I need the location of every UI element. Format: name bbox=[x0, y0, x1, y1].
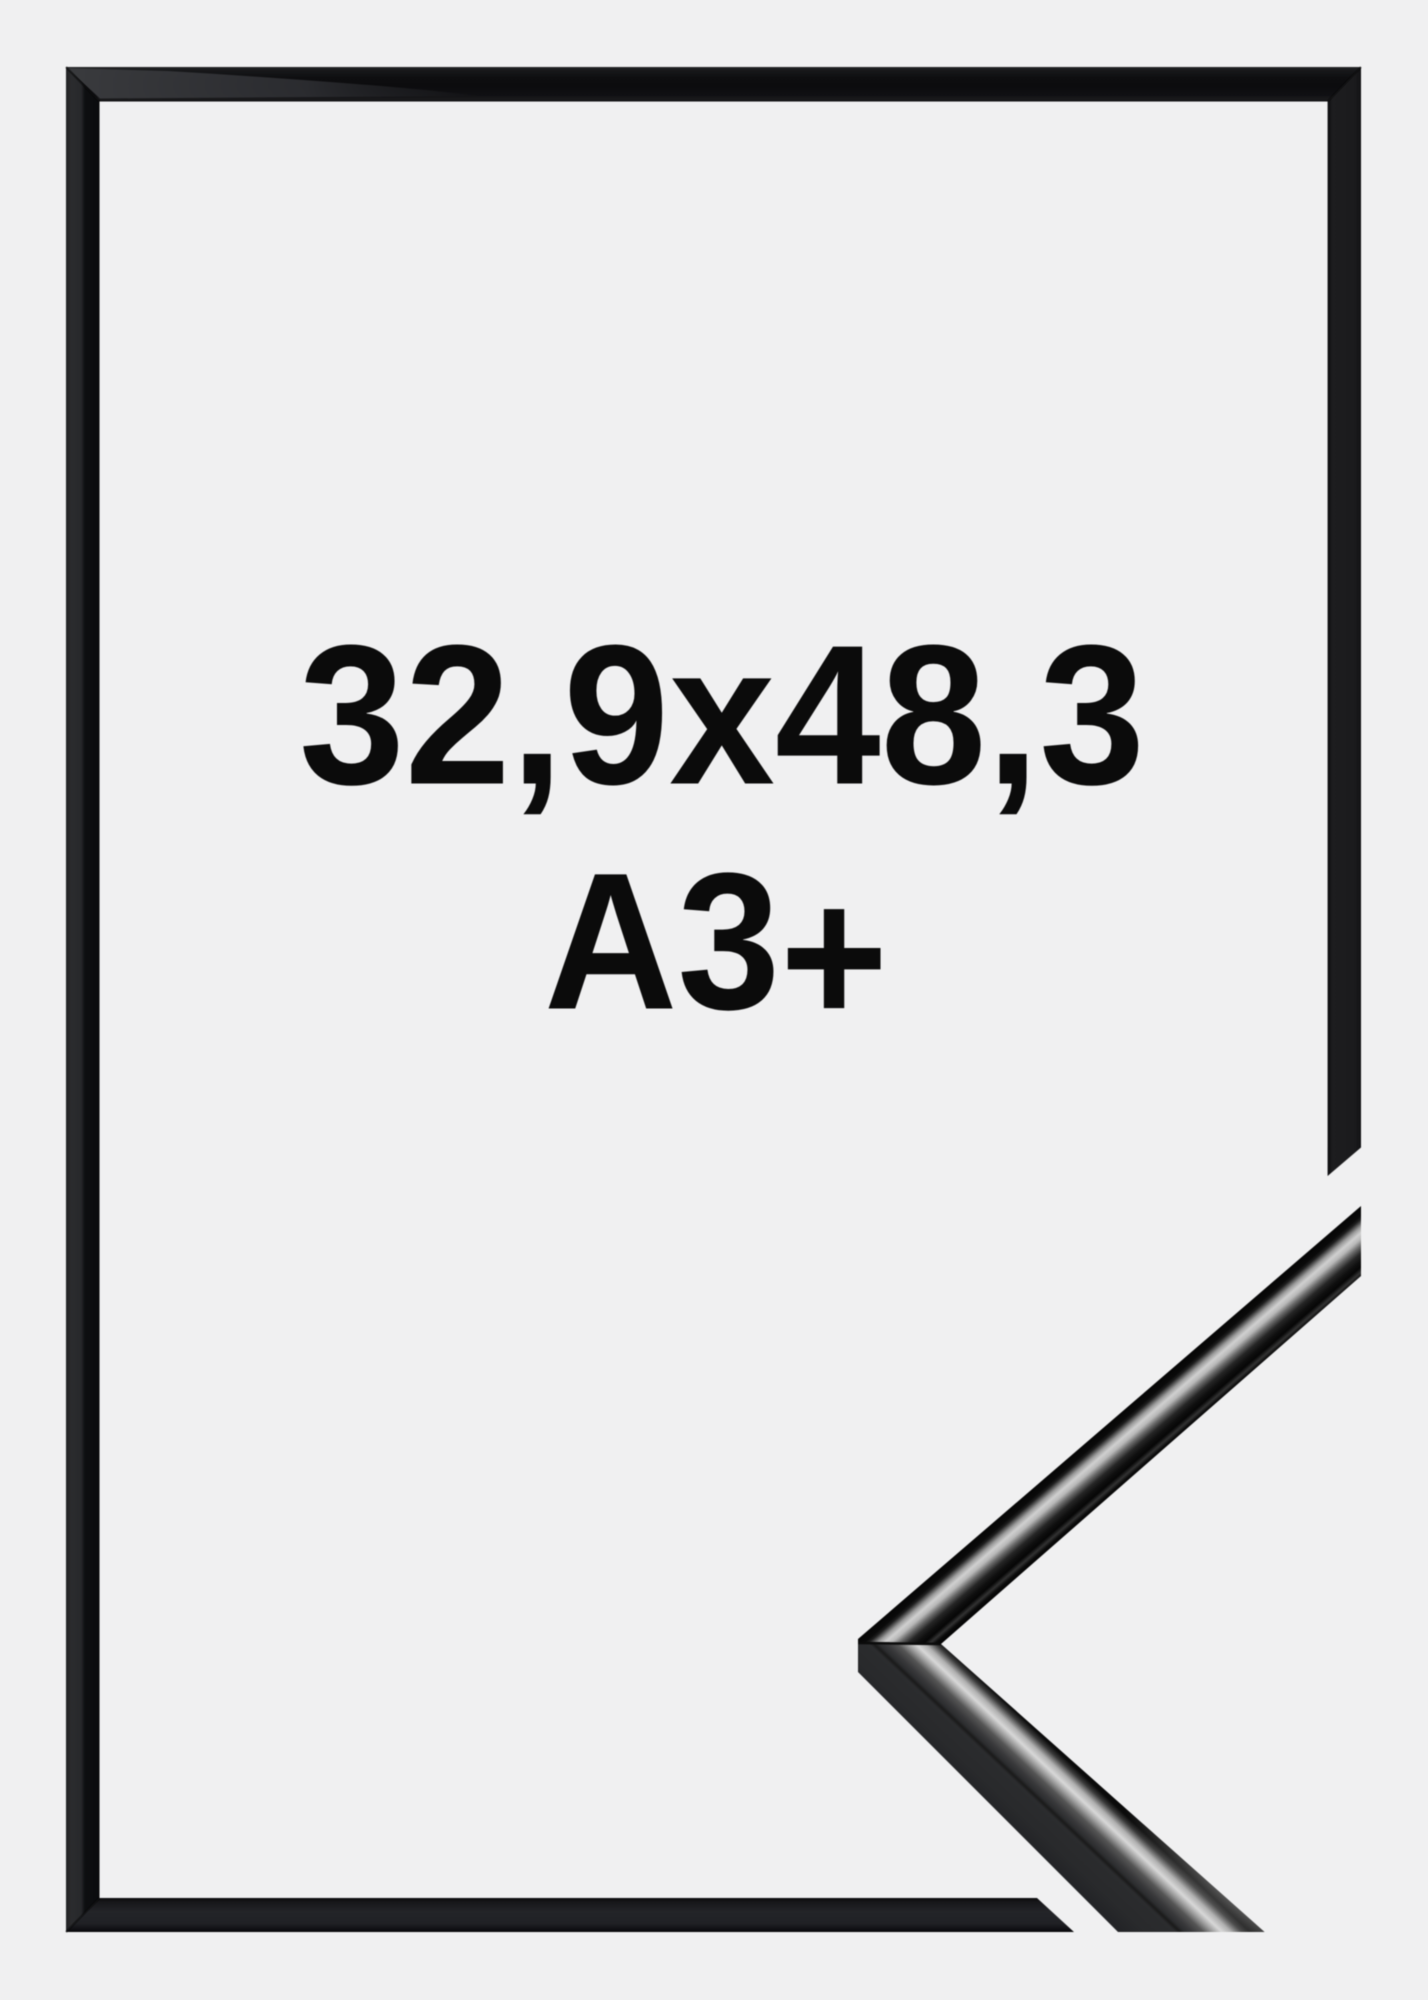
svg-text:A3+: A3+ bbox=[544, 833, 888, 1066]
svg-text:32,9x48,3: 32,9x48,3 bbox=[299, 605, 1145, 827]
